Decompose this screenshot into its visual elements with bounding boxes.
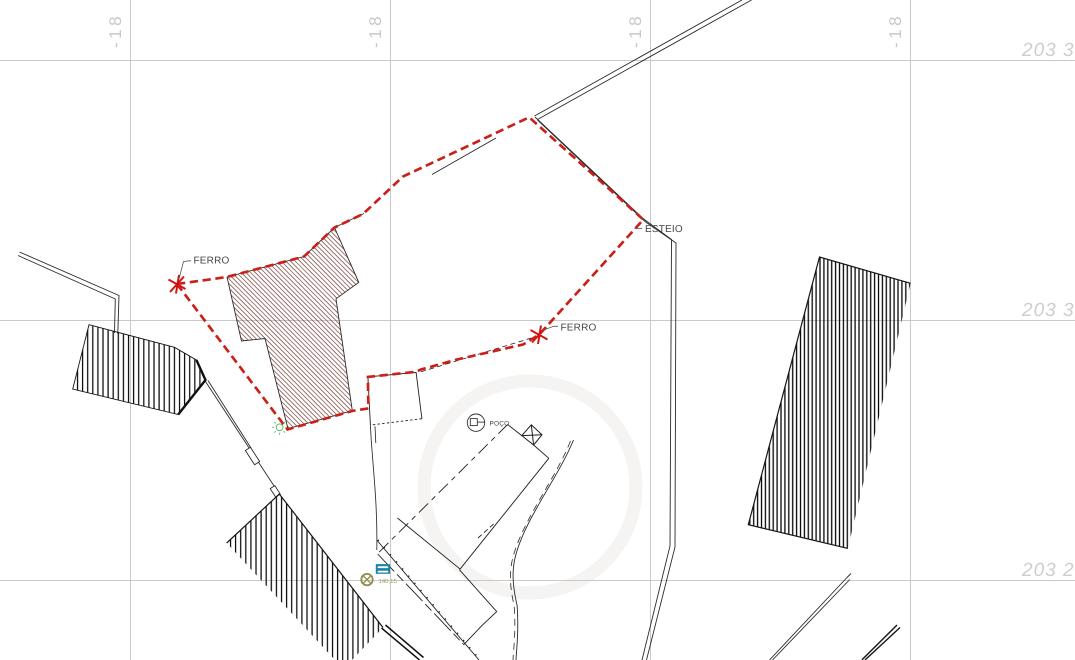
- svg-text:ESTEIO: ESTEIO: [645, 224, 683, 235]
- svg-text:-18: -18: [886, 13, 905, 48]
- svg-text:203 30: 203 30: [1021, 300, 1075, 321]
- svg-text:-18: -18: [626, 13, 645, 48]
- svg-text:-18: -18: [106, 13, 125, 48]
- svg-text:140,15: 140,15: [379, 578, 398, 585]
- svg-text:203 25: 203 25: [1021, 560, 1075, 581]
- svg-text:203 35: 203 35: [1021, 40, 1075, 61]
- svg-text:POÇO: POÇO: [490, 421, 510, 428]
- svg-text:FERRO: FERRO: [194, 256, 230, 267]
- svg-text:-18: -18: [366, 13, 385, 48]
- svg-text:FERRO: FERRO: [561, 323, 597, 334]
